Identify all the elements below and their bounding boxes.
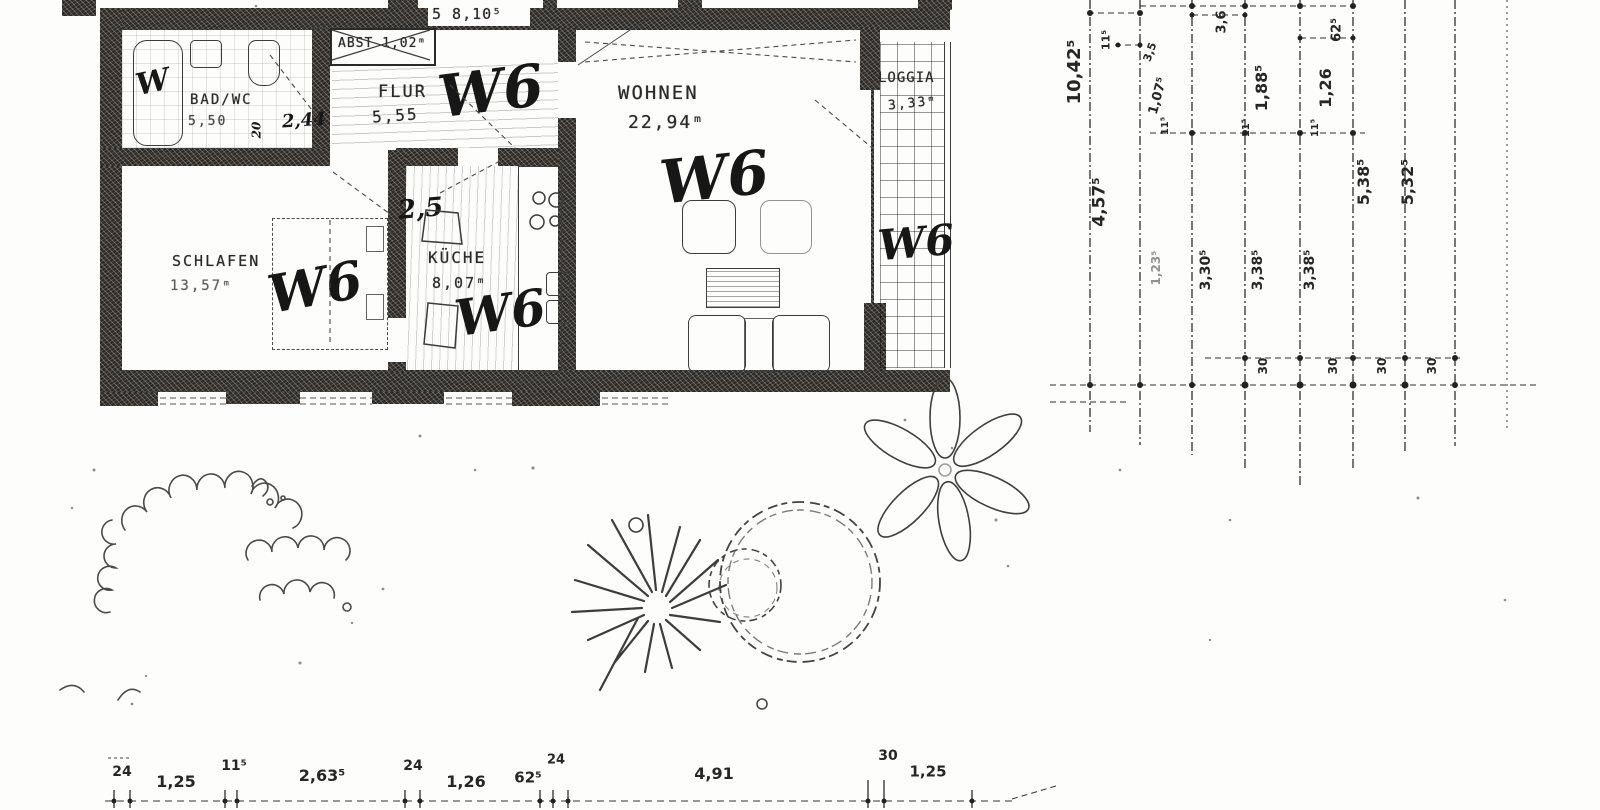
dim-label-4-57-5: 4,57⁵ [1092, 177, 1109, 226]
dim-label-bottom-1-26: 1,26 [446, 774, 485, 790]
dim-label-30-a: 30 [1257, 358, 1269, 375]
dim-label-bottom-2-63-5: 2,63⁵ [299, 768, 345, 784]
dim-label-30-c: 30 [1376, 358, 1388, 375]
door-leaf-line [578, 18, 648, 65]
dim-label-3-38-5-b: 3,38⁵ [1303, 250, 1317, 291]
dim-label-11-5-a: 11⁵ [1101, 30, 1112, 50]
dim-label-11-5-b: 11⁵ [1161, 117, 1171, 135]
linework-overlay [0, 0, 1600, 810]
dim-label-bottom-62-5: 62⁵ [514, 771, 541, 786]
kitchen-chairs [422, 210, 462, 348]
dim-label-bottom-1-25-b: 1,25 [909, 765, 946, 780]
dim-label-bottom-24-a: 24 [112, 765, 131, 779]
window-sill-lines [160, 398, 668, 404]
garden-star-plant [572, 515, 726, 690]
door-swing-lines [270, 40, 877, 346]
dim-label-bottom-24-c: 24 [547, 754, 565, 767]
dim-label-5-38-5: 5,38⁵ [1356, 159, 1372, 205]
dim-label-30-d: 30 [1426, 358, 1438, 375]
dim-label-bottom-11-5: 11⁵ [221, 759, 247, 773]
dim-label-3-38-5-a: 3,38⁵ [1251, 250, 1265, 291]
garden-hedge-scribbles [60, 471, 767, 709]
scan-specks [71, 5, 1506, 706]
dim-label-30-b: 30 [1327, 358, 1339, 375]
kitchen-sink [530, 192, 563, 229]
dim-grid-horizontal-lines [1050, 6, 1540, 402]
dim-label-1-26: 1,26 [1318, 68, 1334, 107]
dim-label-bottom-30: 30 [878, 749, 897, 763]
dim-label-bottom-4-91: 4,91 [694, 766, 733, 782]
dim-label-11-5-d: 11⁵ [1311, 119, 1321, 137]
dim-label-1-88-5: 1,88⁵ [1254, 65, 1270, 111]
dim-label-bottom-24-b: 24 [403, 759, 422, 773]
garden-shrub [709, 502, 880, 662]
bottom-dim-line-tail [1012, 786, 1056, 799]
garden-flower-plant [858, 378, 1035, 563]
dim-label-5-32-5: 5,32⁵ [1400, 159, 1416, 205]
abst-x-cross [332, 30, 430, 60]
dim-label-3-30-5: 3,30⁵ [1199, 250, 1213, 291]
scanned-floor-plan-page: 5 8,10⁵ BAD/WC 5,50 ABST 1,02ᵐ FLUR 5,55… [0, 0, 1600, 810]
dim-label-3-6: 3,6 [1216, 10, 1229, 33]
dim-label-bottom-1-25-a: 1,25 [156, 774, 195, 790]
dim-grid-vertical-lines [1090, 0, 1455, 487]
dim-label-62-5: 62⁵ [1331, 18, 1344, 42]
dim-label-10-42-5: 10,42⁵ [1066, 40, 1084, 105]
dim-label-1-23-5: 1,23⁵ [1150, 251, 1162, 286]
dim-label-11-5-c: 11⁵ [1242, 119, 1252, 137]
bottom-dim-ticks [114, 780, 972, 808]
